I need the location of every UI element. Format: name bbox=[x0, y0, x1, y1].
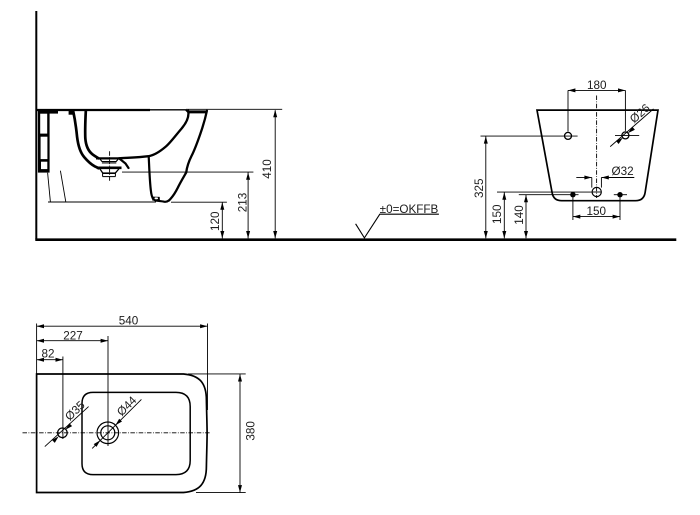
svg-text:82: 82 bbox=[41, 348, 54, 361]
svg-text:Ø32: Ø32 bbox=[612, 165, 634, 178]
svg-text:120: 120 bbox=[209, 211, 222, 231]
svg-text:213: 213 bbox=[237, 193, 250, 213]
svg-text:150: 150 bbox=[587, 205, 607, 218]
svg-text:180: 180 bbox=[587, 79, 607, 92]
svg-text:325: 325 bbox=[473, 178, 486, 198]
svg-text:150: 150 bbox=[491, 204, 504, 224]
svg-text:380: 380 bbox=[245, 421, 258, 441]
svg-text:±0=OKFFB: ±0=OKFFB bbox=[380, 203, 439, 216]
svg-text:410: 410 bbox=[261, 159, 274, 179]
svg-text:227: 227 bbox=[63, 329, 83, 342]
svg-text:140: 140 bbox=[513, 205, 526, 225]
svg-text:540: 540 bbox=[119, 314, 139, 327]
